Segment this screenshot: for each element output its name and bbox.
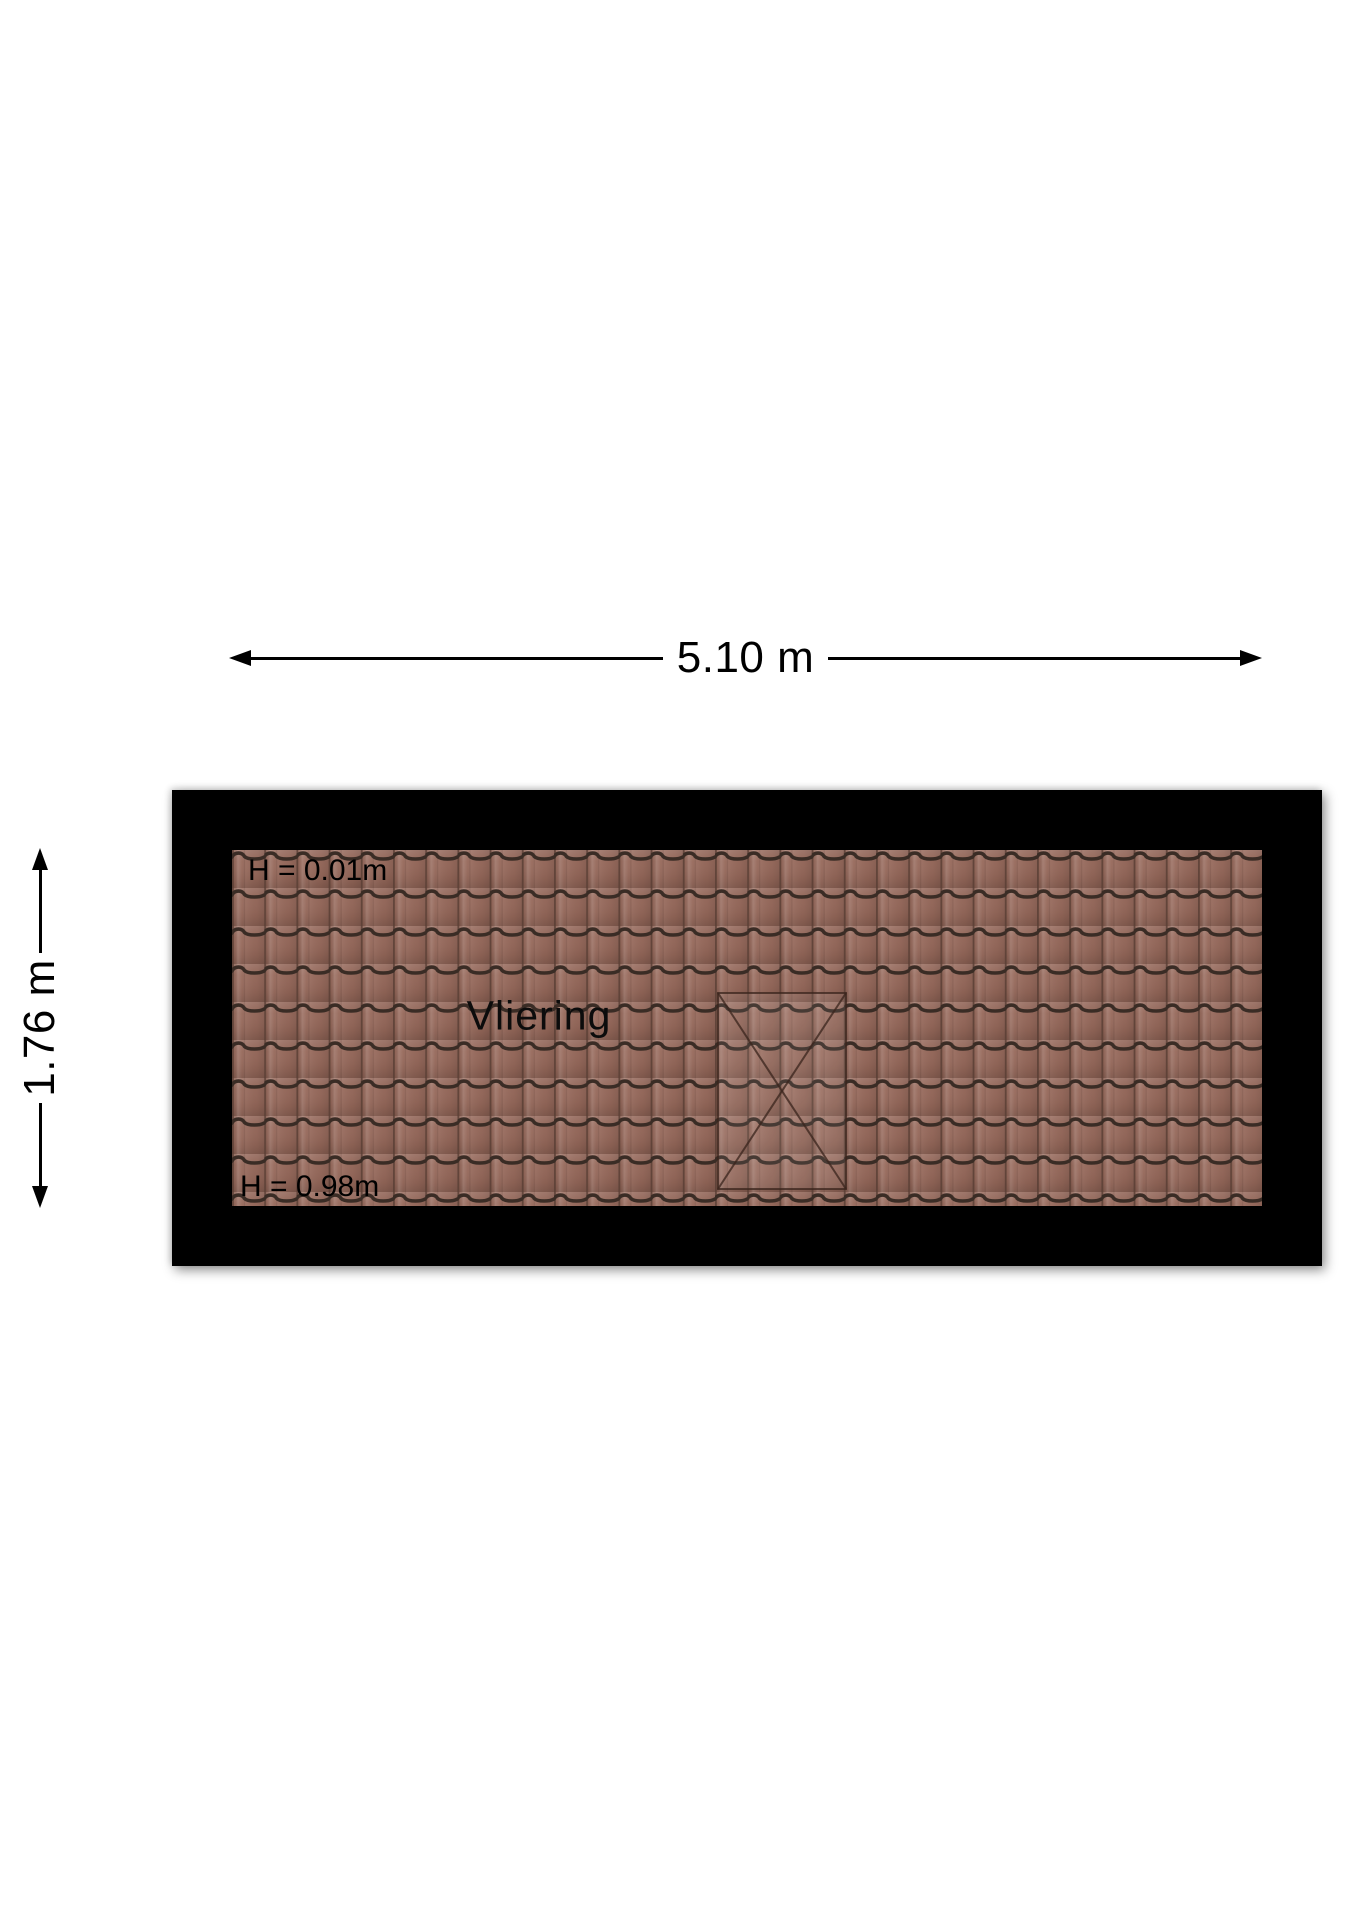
arrowhead-up-icon bbox=[32, 848, 48, 870]
height-dimension-label: 1.76 m bbox=[15, 959, 65, 1097]
roof-tile-texture bbox=[232, 850, 1262, 1206]
floorplan-page: 5.10 m 1.76 m bbox=[0, 0, 1358, 1920]
width-dimension: 5.10 m bbox=[229, 635, 1262, 681]
height-dimension-label-slot: 1.76 m bbox=[17, 953, 63, 1103]
dimension-line-bottom bbox=[39, 1103, 42, 1186]
arrowhead-down-icon bbox=[32, 1186, 48, 1208]
height-dimension: 1.76 m bbox=[17, 848, 63, 1208]
arrowhead-left-icon bbox=[229, 650, 251, 666]
height-at-bottom-label: H = 0.98m bbox=[240, 1170, 379, 1204]
dimension-line-top bbox=[39, 870, 42, 953]
room-name-label: Vliering bbox=[467, 993, 612, 1040]
height-at-top-label: H = 0.01m bbox=[248, 854, 387, 888]
width-dimension-label: 5.10 m bbox=[663, 633, 829, 683]
arrowhead-right-icon bbox=[1240, 650, 1262, 666]
dimension-line-right bbox=[828, 657, 1240, 660]
roof-area: H = 0.01m H = 0.98m Vliering bbox=[232, 850, 1262, 1206]
skylight-window bbox=[718, 993, 846, 1189]
dimension-line-left bbox=[251, 657, 663, 660]
attic-floorplan: H = 0.01m H = 0.98m Vliering bbox=[172, 790, 1322, 1266]
